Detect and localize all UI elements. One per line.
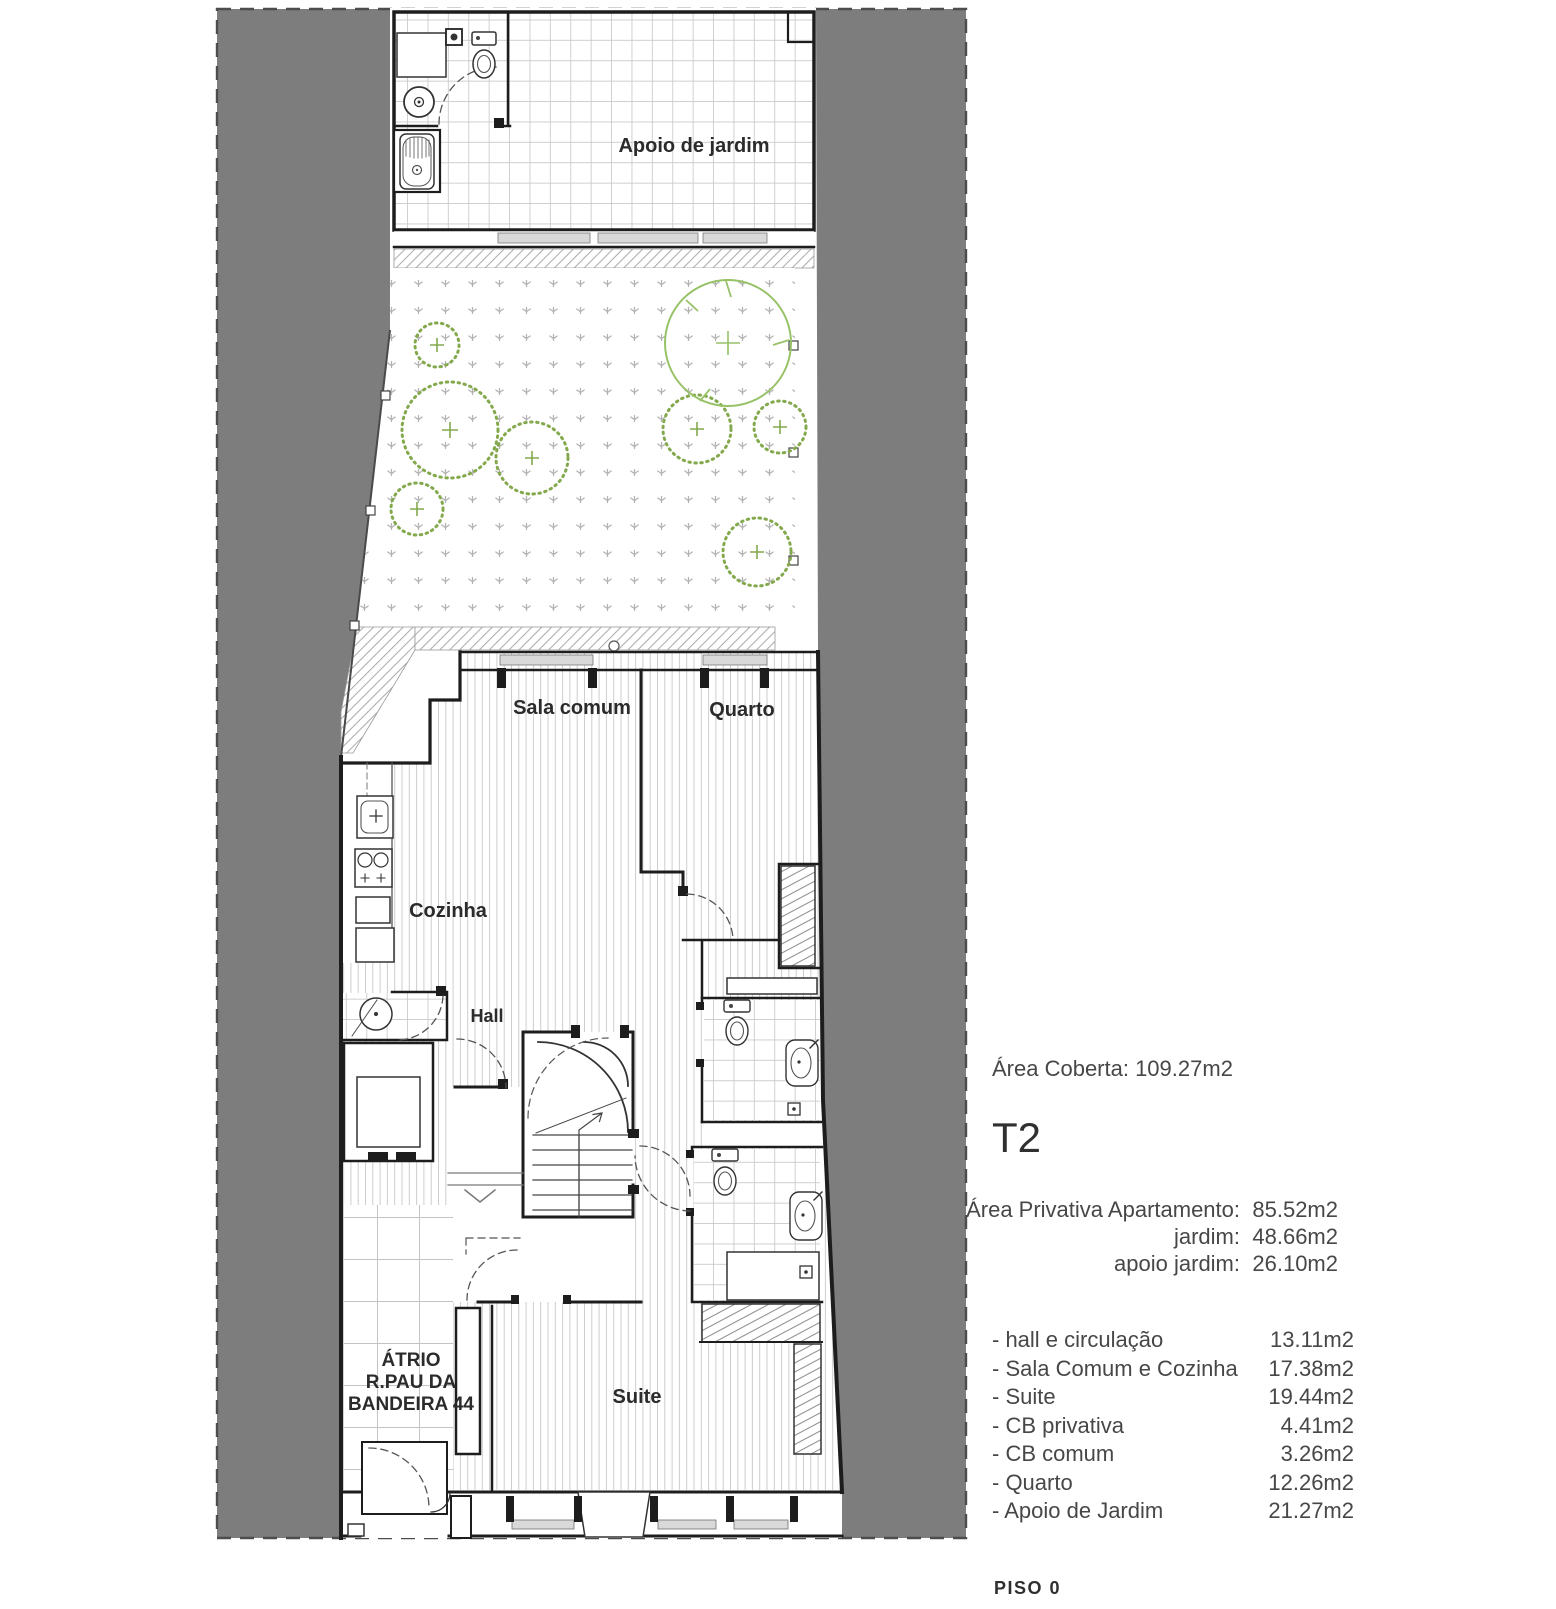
washbasin-fixture <box>786 1040 818 1086</box>
room-area-value: 21.27m2 <box>1268 1497 1354 1526</box>
room-area-label: - Quarto <box>992 1469 1073 1498</box>
private-area-label: Área Privativa Apartamento: <box>938 1196 1240 1223</box>
private-area-label: jardim: <box>938 1223 1240 1250</box>
paving-band-bottom <box>415 627 775 650</box>
room-area-label: - Sala Comum e Cozinha <box>992 1355 1238 1384</box>
console-shelf <box>727 978 817 994</box>
label-suite: Suite <box>613 1386 662 1408</box>
label-atrio-line1: ÁTRIO <box>381 1349 440 1371</box>
entry-step <box>348 1524 364 1536</box>
private-area-value: 85.52m2 <box>1246 1196 1338 1223</box>
covered-area-text: Área Coberta: 109.27m2 <box>992 1056 1233 1082</box>
bathtub-fixture <box>394 130 440 192</box>
label-cozinha: Cozinha <box>409 900 488 922</box>
stove-fixture <box>355 849 392 887</box>
room-area-label: - Apoio de Jardim <box>992 1497 1163 1526</box>
facade-pillar <box>451 1496 471 1538</box>
room-area-value: 13.11m2 <box>1270 1326 1354 1355</box>
private-area-value: 48.66m2 <box>1246 1223 1338 1250</box>
private-area-value: 26.10m2 <box>1246 1250 1338 1277</box>
suite-closet <box>702 1304 820 1342</box>
floor-plan-page: Apoio de jardim Sala comum Quarto Cozinh… <box>0 0 1556 1609</box>
garden-support-building <box>394 12 814 247</box>
washbasin-fixture <box>790 1192 822 1240</box>
kitchen-sink-fixture <box>357 796 393 838</box>
unit-type-label: T2 <box>992 1114 1041 1162</box>
room-area-label: - hall e circulação <box>992 1326 1163 1355</box>
label-atrio-line2: R.PAU DA <box>366 1372 457 1393</box>
room-area-row: - hall e circulação13.11m2 <box>992 1326 1354 1355</box>
toilet-fixture <box>472 32 496 78</box>
quarto-closet <box>781 866 815 966</box>
label-hall: Hall <box>470 1006 503 1026</box>
room-area-value: 17.38m2 <box>1268 1355 1354 1384</box>
room-area-row: - Suite19.44m2 <box>992 1383 1354 1412</box>
toilet-fixture <box>712 1149 738 1195</box>
private-areas-block: Área Privativa Apartamento: 85.52m2 jard… <box>938 1196 1338 1277</box>
room-areas-list: - hall e circulação13.11m2 - Sala Comum … <box>992 1326 1354 1526</box>
room-area-row: - Sala Comum e Cozinha17.38m2 <box>992 1355 1354 1384</box>
label-atrio-line3: BANDEIRA 44 <box>348 1394 474 1415</box>
suite-wardrobe <box>794 1344 821 1454</box>
room-area-row: - CB privativa4.41m2 <box>992 1412 1354 1441</box>
elevator-shaft <box>344 1043 433 1161</box>
room-area-label: - CB comum <box>992 1440 1114 1469</box>
paving-band-top <box>394 249 814 268</box>
wall-pier <box>456 1308 480 1454</box>
label-quarto: Quarto <box>709 699 775 721</box>
room-area-row: - Apoio de Jardim21.27m2 <box>992 1497 1354 1526</box>
toilet-fixture <box>724 1000 750 1045</box>
label-apoio-de-jardim: Apoio de jardim <box>618 135 769 157</box>
room-area-value: 4.41m2 <box>1281 1412 1354 1441</box>
counter <box>397 33 446 77</box>
wc-floor <box>343 993 447 1040</box>
washing-machine-fixture <box>404 87 434 117</box>
floor-label: PISO 0 <box>994 1578 1061 1599</box>
room-area-value: 19.44m2 <box>1268 1383 1354 1412</box>
room-area-value: 12.26m2 <box>1268 1469 1354 1498</box>
room-area-label: - Suite <box>992 1383 1056 1412</box>
bay-element <box>578 1492 650 1537</box>
private-area-label: apoio jardim: <box>938 1250 1240 1277</box>
room-area-row: - Quarto12.26m2 <box>992 1469 1354 1498</box>
room-area-label: - CB privativa <box>992 1412 1124 1441</box>
room-area-value: 3.26m2 <box>1281 1440 1354 1469</box>
label-sala-comum: Sala comum <box>513 697 631 719</box>
room-area-row: - CB comum3.26m2 <box>992 1440 1354 1469</box>
